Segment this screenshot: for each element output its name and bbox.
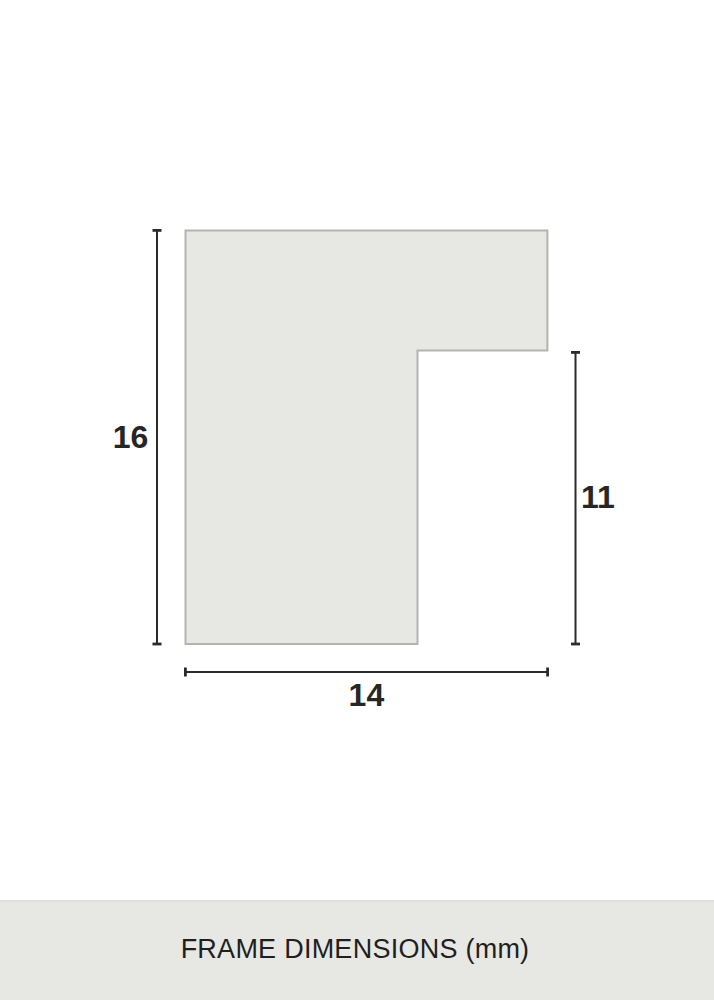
svg-text:14: 14 bbox=[349, 677, 385, 713]
svg-text:11: 11 bbox=[581, 479, 615, 515]
svg-text:16: 16 bbox=[113, 419, 149, 455]
